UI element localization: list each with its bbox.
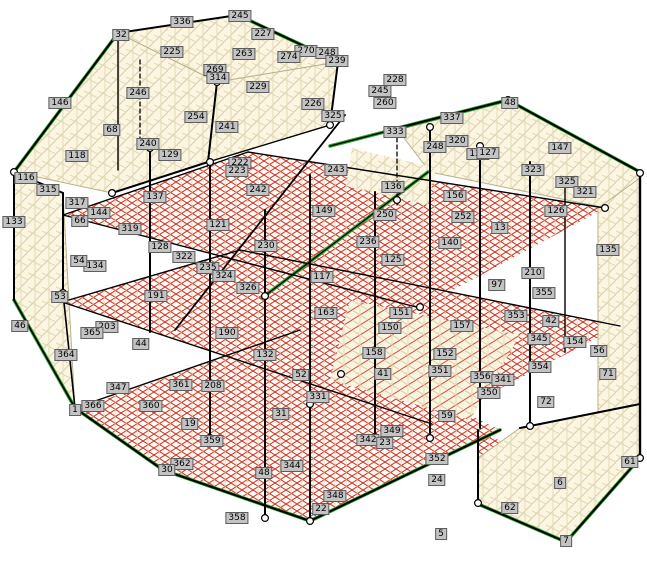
model-viewport[interactable]: 3233624522722526327024827423926931422922… xyxy=(0,0,647,576)
model-svg xyxy=(0,0,647,576)
wing-right-bottom xyxy=(478,404,640,542)
